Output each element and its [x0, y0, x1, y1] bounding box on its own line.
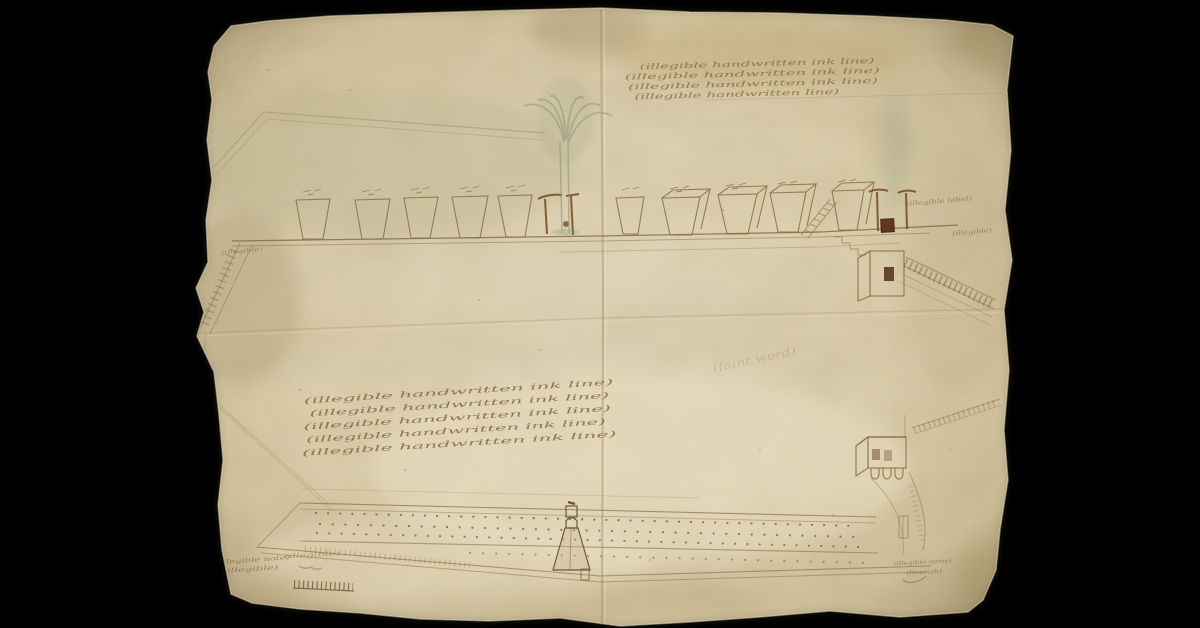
scan-stage: (illegible handwritten ink line) (illegi…: [0, 0, 1200, 628]
manuscript-scan: (illegible handwritten ink line) (illegi…: [0, 0, 1200, 628]
parchment-sheet: (illegible handwritten ink line) (illegi…: [180, 0, 1042, 628]
window: [884, 450, 892, 461]
ink-blot: [563, 221, 569, 227]
dark-post-block: [881, 219, 895, 233]
doorway: [884, 267, 894, 281]
window: [872, 449, 880, 460]
